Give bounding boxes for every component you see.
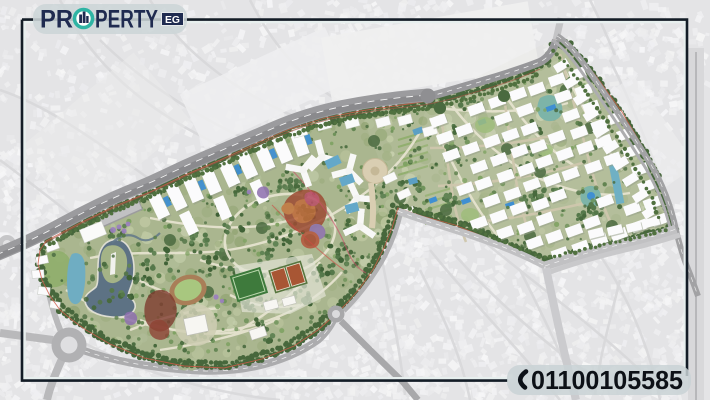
svg-text:EG: EG	[165, 15, 180, 26]
svg-text:01100105585: 01100105585	[531, 365, 683, 395]
svg-text:PR: PR	[40, 6, 73, 34]
svg-text:PERTY: PERTY	[95, 6, 158, 34]
